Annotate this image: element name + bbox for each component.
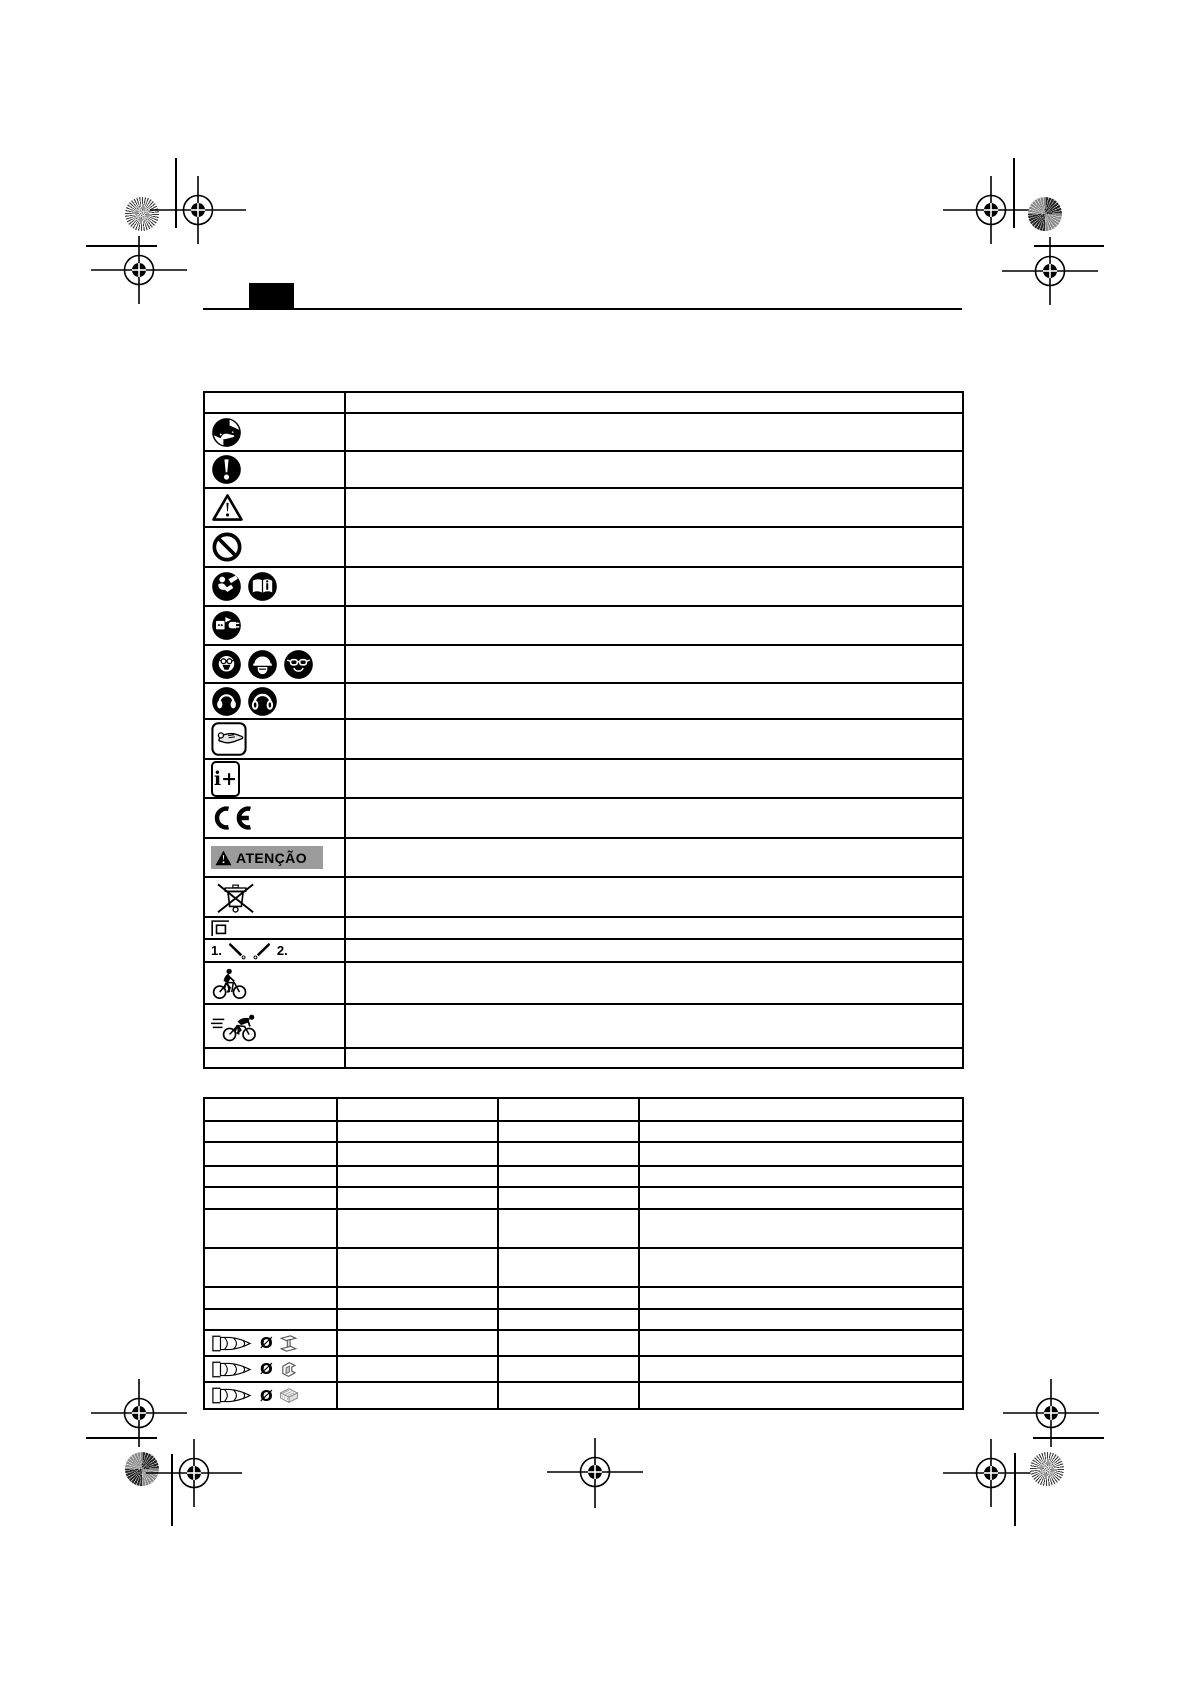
symbol-row: 1. 2. (204, 939, 963, 962)
table-header-row (204, 392, 963, 413)
star-target-icon (1028, 197, 1062, 231)
ce-mark-icon (211, 805, 254, 831)
symbol-row: ATENÇÃO (204, 838, 963, 877)
unplug-icon (211, 610, 242, 641)
symbol-row (204, 1048, 963, 1068)
dust-mask-icon (211, 649, 242, 680)
meaning-cell (345, 1004, 963, 1048)
spec-row-drill-wood: Ø (204, 1382, 963, 1409)
meaning-cell (345, 451, 963, 488)
bit-up-icon (252, 941, 272, 960)
meaning-cell (345, 527, 963, 567)
symbol-row (204, 451, 963, 488)
spec-row (204, 1142, 963, 1166)
spec-row (204, 1248, 963, 1287)
star-target-icon (1030, 1452, 1064, 1486)
header-rule (203, 308, 962, 310)
wood-block-icon (278, 1386, 300, 1405)
read-manual-icon (211, 571, 242, 602)
symbol-row: i+ (204, 759, 963, 798)
registration-target-icon (943, 1433, 1039, 1513)
symbol-row (204, 877, 963, 917)
drill-bit-icon (211, 1359, 255, 1380)
symbol-row (204, 962, 963, 1004)
meaning-cell (345, 413, 963, 451)
symbol-row (204, 527, 963, 567)
symbol-row (204, 719, 963, 759)
meaning-cell (345, 962, 963, 1004)
spec-row (204, 1309, 963, 1330)
crop-line (1014, 1453, 1016, 1526)
more-information-icon: i+ (211, 761, 240, 797)
diameter-symbol: Ø (260, 1360, 273, 1378)
symbol-row (204, 1004, 963, 1048)
symbol-row (204, 917, 963, 939)
meaning-cell (345, 877, 963, 917)
spec-row (204, 1209, 963, 1248)
registration-target-icon (1002, 231, 1098, 311)
step-1-label: 1. (211, 943, 222, 958)
spec-table: Ø Ø Ø (203, 1097, 964, 1410)
steel-beam-icon (278, 1333, 299, 1354)
crop-line (1033, 1437, 1104, 1439)
document-page: i+ ATENÇÃO (0, 0, 1190, 1684)
spec-row (204, 1187, 963, 1209)
bit-down-icon (227, 941, 247, 960)
symbol-row (204, 798, 963, 838)
meaning-cell (345, 606, 963, 645)
meaning-cell (345, 759, 963, 798)
hand-grip-icon (211, 722, 247, 756)
metal-profile-icon (278, 1359, 299, 1380)
warning-triangle-icon (215, 850, 232, 866)
weee-crossed-bin-icon (211, 879, 261, 915)
diameter-symbol: Ø (260, 1387, 273, 1405)
symbols-table: i+ ATENÇÃO (203, 391, 964, 1069)
symbol-row (204, 645, 963, 683)
spec-row (204, 1166, 963, 1187)
racing-cyclist-icon (211, 1010, 257, 1043)
symbol-row (204, 413, 963, 451)
meaning-cell (345, 567, 963, 606)
spec-row-drill-steel: Ø (204, 1330, 963, 1356)
do-not-touch-prohibition-icon (211, 417, 242, 448)
bit-angle-steps-icon: 1. 2. (211, 941, 340, 960)
spec-row (204, 1287, 963, 1309)
diameter-symbol: Ø (260, 1334, 273, 1352)
meaning-cell (345, 917, 963, 939)
symbol-col-header (204, 392, 345, 413)
info-plus-label: i+ (214, 768, 237, 790)
safety-goggles-icon (283, 649, 314, 680)
prohibition-icon (211, 531, 243, 563)
symbol-cell-empty (204, 1048, 345, 1068)
meaning-cell (345, 488, 963, 527)
warning-triangle-icon (211, 492, 244, 523)
meaning-cell (345, 838, 963, 877)
atencao-warning-banner: ATENÇÃO (211, 846, 323, 869)
meaning-cell (345, 939, 963, 962)
cyclist-icon (211, 966, 249, 1001)
page-number-block (249, 283, 294, 309)
mandatory-action-icon (211, 454, 242, 485)
atencao-label: ATENÇÃO (236, 850, 307, 866)
meaning-cell (345, 645, 963, 683)
spec-row (204, 1121, 963, 1142)
spec-row-drill-metal: Ø (204, 1356, 963, 1382)
symbol-row (204, 488, 963, 527)
registration-target-icon (547, 1432, 643, 1512)
spec-header-row (204, 1098, 963, 1121)
meaning-cell (345, 719, 963, 759)
ear-protection-large-icon (247, 686, 278, 717)
face-shield-icon (247, 649, 278, 680)
instruction-book-icon (247, 571, 278, 602)
drill-bit-icon (211, 1333, 255, 1354)
symbol-row (204, 606, 963, 645)
protection-class-2-icon (211, 920, 230, 937)
meaning-col-header (345, 392, 963, 413)
registration-target-icon (91, 230, 187, 310)
symbol-row (204, 683, 963, 719)
meaning-cell (345, 1048, 963, 1068)
symbol-row (204, 567, 963, 606)
meaning-cell (345, 798, 963, 838)
step-2-label: 2. (277, 943, 288, 958)
registration-target-icon (146, 1433, 242, 1513)
drill-bit-icon (211, 1385, 255, 1406)
crop-line (1013, 158, 1015, 228)
meaning-cell (345, 683, 963, 719)
ear-protection-icon (211, 686, 242, 717)
